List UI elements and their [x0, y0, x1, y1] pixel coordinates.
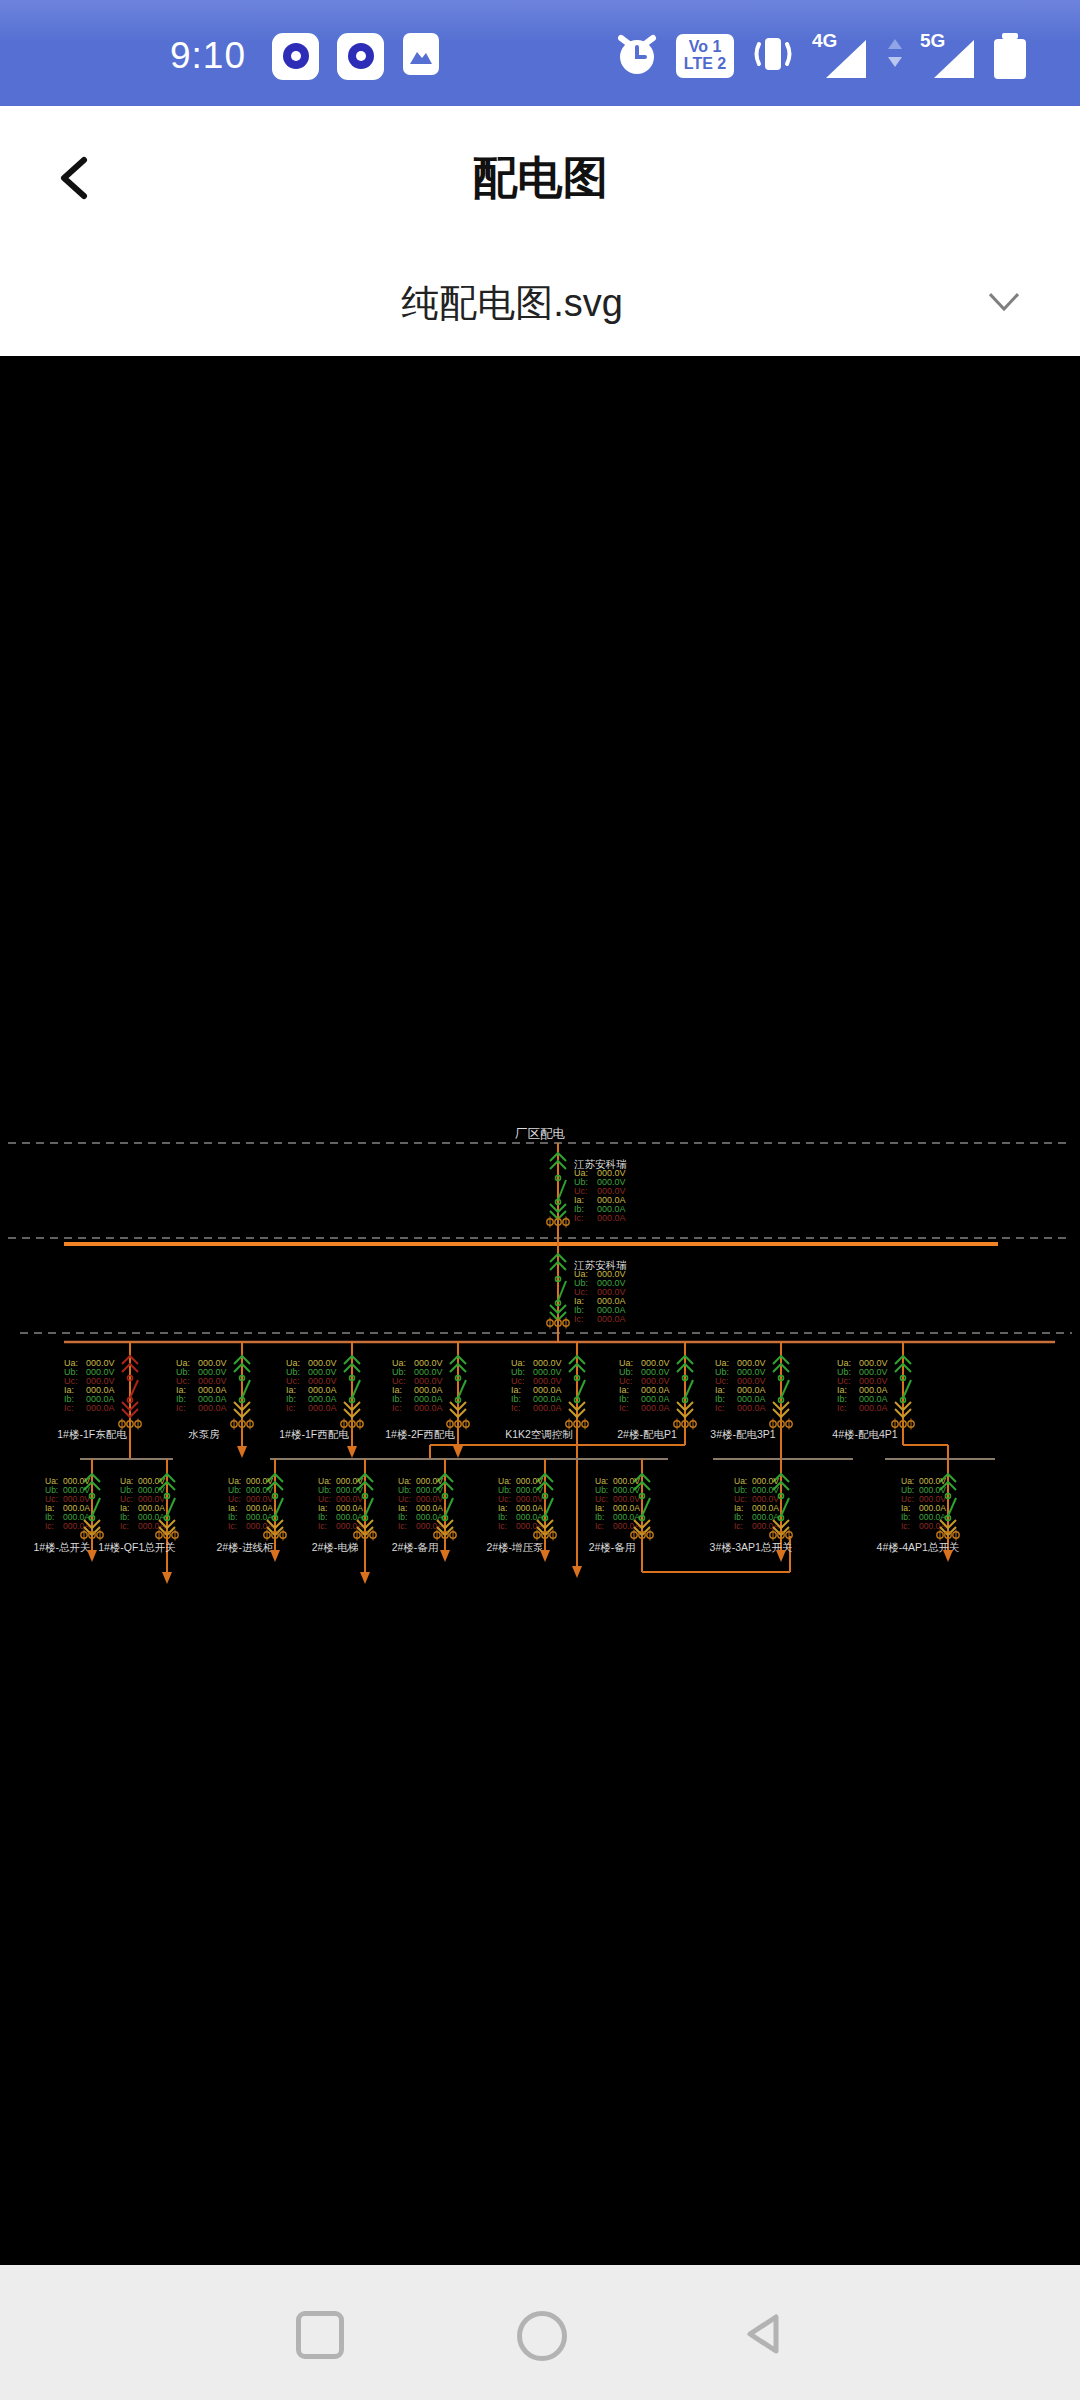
distribution-diagram[interactable]: 厂区配电江苏安科瑞Ua:000.0VUb:000.0VUc:000.0VIa:0…: [0, 1120, 1080, 1640]
tier1-feeder-8: Ua:000.0VUb:000.0VUc:000.0VIa:000.0AIb:0…: [832, 1342, 948, 1459]
app-header: 配电图: [0, 106, 1080, 251]
battery-icon: [994, 33, 1026, 79]
svg-text:4#楼-配电4P1: 4#楼-配电4P1: [832, 1428, 898, 1440]
back-button[interactable]: [48, 150, 100, 206]
svg-text:000.0A: 000.0A: [308, 1403, 337, 1413]
diagram-canvas: 厂区配电江苏安科瑞Ua:000.0VUb:000.0VUc:000.0VIa:0…: [0, 356, 1080, 2265]
svg-text:Ic:: Ic:: [398, 1521, 407, 1531]
svg-text:1#楼-2F西配电: 1#楼-2F西配电: [385, 1428, 455, 1440]
svg-text:1#楼-1F西配电: 1#楼-1F西配电: [279, 1428, 349, 1440]
svg-text:Ic:: Ic:: [392, 1403, 402, 1413]
svg-text:000.0A: 000.0A: [86, 1403, 115, 1413]
tier1-feeder-6: Ua:000.0VUb:000.0VUc:000.0VIa:000.0AIb:0…: [430, 1342, 696, 1459]
volte-icon: Vo 1 LTE 2: [676, 34, 734, 78]
svg-text:000.0A: 000.0A: [533, 1403, 562, 1413]
alarm-icon: [614, 30, 660, 82]
chevron-down-icon: [986, 290, 1022, 318]
svg-text:K1K2空调控制: K1K2空调控制: [505, 1428, 573, 1440]
tier2-feeder-8: Ua:000.0VUb:000.0VUc:000.0VIa:000.0AIb:0…: [710, 1459, 793, 1562]
home-circle-icon[interactable]: [517, 2311, 567, 2361]
svg-text:2#楼-配电P1: 2#楼-配电P1: [617, 1428, 677, 1440]
clock-text: 9:10: [170, 35, 246, 77]
svg-text:Ic:: Ic:: [318, 1521, 327, 1531]
svg-text:Ic:: Ic:: [176, 1403, 186, 1413]
svg-text:2#楼-增压泵: 2#楼-增压泵: [486, 1541, 544, 1553]
svg-text:Ic:: Ic:: [120, 1521, 129, 1531]
recents-square-icon[interactable]: [296, 2311, 344, 2359]
signal-4g-label: 4G: [812, 30, 837, 52]
updown-arrows-icon: [886, 37, 904, 75]
tier1-feeder-3: Ua:000.0VUb:000.0VUc:000.0VIa:000.0AIb:0…: [279, 1342, 363, 1458]
signal-4g-icon: 4G: [812, 32, 870, 80]
svg-text:Ic:: Ic:: [511, 1403, 521, 1413]
svg-text:Ic:: Ic:: [734, 1521, 743, 1531]
volte-top-text: Vo 1: [689, 39, 722, 56]
tier2-feeder-9: Ua:000.0VUb:000.0VUc:000.0VIa:000.0AIb:0…: [877, 1459, 960, 1562]
file-name-text: 纯配电图.svg: [401, 278, 623, 329]
file-selector[interactable]: 纯配电图.svg: [0, 250, 1080, 356]
svg-text:Ic:: Ic:: [228, 1521, 237, 1531]
status-bar: 9:10 Vo 1 LTE 2 4: [0, 0, 1080, 106]
incomer-2: 江苏安科瑞Ua:000.0VUb:000.0VUc:000.0VIa:000.0…: [547, 1244, 627, 1342]
tier2-feeder-2: Ua:000.0VUb:000.0VUc:000.0VIa:000.0AIb:0…: [98, 1459, 178, 1584]
android-nav-bar: [0, 2265, 1080, 2400]
svg-text:Ic:: Ic:: [595, 1521, 604, 1531]
site-label: 厂区配电: [515, 1127, 566, 1141]
svg-text:000.0A: 000.0A: [641, 1403, 670, 1413]
svg-text:000.0A: 000.0A: [414, 1403, 443, 1413]
back-chevron-icon: [54, 154, 94, 202]
vibrate-icon: [750, 30, 796, 82]
svg-text:1#楼-1F东配电: 1#楼-1F东配电: [57, 1428, 127, 1440]
svg-text:Ic:: Ic:: [619, 1403, 629, 1413]
svg-text:3#楼-配电3P1: 3#楼-配电3P1: [710, 1428, 776, 1440]
svg-text:Ic:: Ic:: [64, 1403, 74, 1413]
notification-app-icon: [272, 33, 319, 80]
tier2-feeder-6: Ua:000.0VUb:000.0VUc:000.0VIa:000.0AIb:0…: [486, 1459, 556, 1562]
page-title: 配电图: [473, 148, 608, 208]
svg-text:2#楼-备用: 2#楼-备用: [392, 1541, 439, 1553]
tier2-feeder-5: Ua:000.0VUb:000.0VUc:000.0VIa:000.0AIb:0…: [392, 1459, 457, 1562]
svg-text:1#楼-QF1总开关: 1#楼-QF1总开关: [98, 1541, 176, 1553]
boundary-dashed-lines: [8, 1143, 1072, 1333]
svg-text:2#楼-备用: 2#楼-备用: [589, 1541, 636, 1553]
notification-app-icon: [337, 33, 384, 80]
svg-text:Ic:: Ic:: [901, 1521, 910, 1531]
svg-text:厂区配电: 厂区配电: [515, 1127, 566, 1141]
tier1-feeder-2: Ua:000.0VUb:000.0VUc:000.0VIa:000.0AIb:0…: [176, 1342, 253, 1458]
svg-text:2#楼-进线柜: 2#楼-进线柜: [216, 1541, 274, 1553]
back-triangle-icon[interactable]: [740, 2311, 786, 2361]
svg-text:Ic:: Ic:: [715, 1403, 725, 1413]
tier2-feeder-4: Ua:000.0VUb:000.0VUc:000.0VIa:000.0AIb:0…: [312, 1459, 377, 1584]
svg-text:水泵房: 水泵房: [188, 1428, 220, 1440]
tier1-feeder-1: Ua:000.0VUb:000.0VUc:000.0VIa:000.0AIb:0…: [57, 1342, 141, 1459]
signal-5g-icon: 5G: [920, 32, 978, 80]
tier1-feeder-7: Ua:000.0VUb:000.0VUc:000.0VIa:000.0AIb:0…: [710, 1342, 792, 1459]
svg-text:Ic:: Ic:: [837, 1403, 847, 1413]
svg-text:000.0A: 000.0A: [859, 1403, 888, 1413]
svg-text:Ic:: Ic:: [286, 1403, 296, 1413]
volte-bottom-text: LTE 2: [684, 56, 726, 73]
tier2-feeder-3: Ua:000.0VUb:000.0VUc:000.0VIa:000.0AIb:0…: [216, 1459, 286, 1562]
svg-text:Ic:: Ic:: [498, 1521, 507, 1531]
gallery-icon: [402, 30, 440, 82]
svg-text:2#楼-电梯: 2#楼-电梯: [312, 1541, 359, 1553]
svg-text:Ic:: Ic:: [574, 1314, 584, 1324]
svg-text:000.0A: 000.0A: [737, 1403, 766, 1413]
svg-text:000.0A: 000.0A: [198, 1403, 227, 1413]
signal-5g-label: 5G: [920, 30, 945, 52]
svg-text:Ic:: Ic:: [45, 1521, 54, 1531]
svg-text:Ic:: Ic:: [574, 1213, 584, 1223]
incomer-1: 江苏安科瑞Ua:000.0VUb:000.0VUc:000.0VIa:000.0…: [547, 1143, 627, 1244]
svg-text:1#楼-总开关: 1#楼-总开关: [33, 1541, 90, 1553]
svg-text:000.0A: 000.0A: [597, 1213, 626, 1223]
svg-text:000.0A: 000.0A: [597, 1314, 626, 1324]
tier1-feeder-4: Ua:000.0VUb:000.0VUc:000.0VIa:000.0AIb:0…: [385, 1342, 469, 1458]
tier2-feeder-1: Ua:000.0VUb:000.0VUc:000.0VIa:000.0AIb:0…: [33, 1459, 103, 1562]
